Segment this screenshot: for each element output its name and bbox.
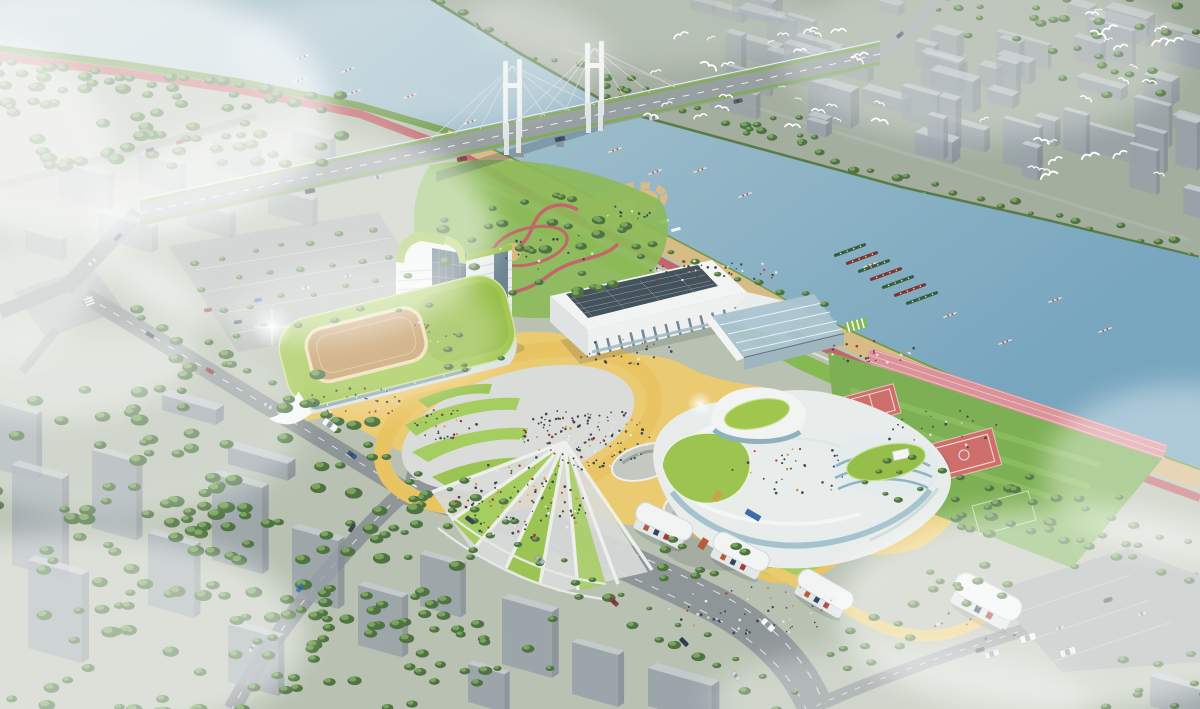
person: [626, 413, 629, 416]
person: [551, 528, 552, 529]
person: [900, 354, 903, 357]
person: [480, 523, 482, 525]
person: [530, 536, 533, 539]
person: [443, 437, 445, 439]
person: [563, 485, 566, 488]
person: [597, 426, 599, 428]
block-side: [1169, 104, 1173, 148]
person: [792, 605, 794, 607]
person: [595, 459, 597, 461]
person: [573, 464, 575, 466]
person: [637, 358, 640, 361]
person: [585, 425, 587, 427]
person: [567, 438, 569, 440]
tree: [730, 543, 742, 550]
person: [567, 462, 569, 464]
person: [551, 471, 554, 474]
person: [572, 514, 574, 516]
person: [810, 612, 812, 614]
person: [531, 500, 533, 502]
person: [605, 443, 607, 445]
person: [835, 344, 837, 346]
person: [607, 420, 609, 422]
person: [930, 416, 931, 417]
person: [612, 421, 614, 423]
person: [873, 350, 875, 352]
person: [563, 423, 566, 426]
person: [549, 425, 551, 427]
person: [626, 431, 628, 433]
tree: [470, 506, 480, 512]
person: [841, 476, 843, 478]
person: [624, 448, 626, 450]
tree: [578, 271, 587, 276]
person: [770, 276, 771, 277]
person: [622, 339, 624, 341]
person: [558, 465, 560, 467]
person: [744, 613, 746, 615]
person: [592, 462, 595, 465]
person: [527, 485, 528, 486]
city-block: [1175, 113, 1200, 170]
person: [475, 483, 477, 485]
person: [496, 470, 499, 473]
person: [329, 411, 331, 413]
person: [995, 424, 997, 426]
person: [369, 411, 371, 413]
person: [577, 415, 579, 417]
person: [468, 427, 470, 429]
person: [345, 410, 347, 412]
tree: [382, 454, 392, 460]
tree: [883, 458, 892, 464]
person: [723, 275, 725, 277]
tree: [418, 610, 431, 618]
person: [478, 529, 481, 532]
person: [732, 469, 734, 471]
person: [912, 347, 915, 350]
person: [609, 445, 611, 447]
person: [775, 271, 778, 274]
tree: [306, 645, 319, 653]
person: [609, 432, 612, 435]
person: [646, 215, 648, 217]
person: [543, 424, 545, 426]
person: [686, 610, 688, 612]
tree: [596, 218, 606, 224]
person: [391, 410, 393, 412]
person: [511, 470, 513, 472]
person: [611, 435, 614, 438]
tree: [320, 531, 334, 540]
person: [607, 416, 609, 418]
person: [538, 260, 541, 263]
person: [387, 412, 389, 414]
tree: [318, 589, 331, 597]
person: [620, 212, 622, 214]
person: [512, 492, 514, 494]
tree: [732, 657, 739, 661]
tree: [561, 558, 568, 562]
person: [830, 600, 831, 601]
tree: [867, 168, 875, 173]
person: [527, 484, 528, 485]
person: [596, 353, 598, 355]
person: [724, 267, 726, 269]
tree: [1028, 499, 1038, 505]
person: [637, 218, 639, 220]
tree: [875, 469, 882, 473]
tree: [770, 116, 777, 120]
person: [611, 456, 613, 458]
tree: [948, 190, 957, 196]
person: [731, 590, 733, 592]
person: [756, 620, 759, 623]
person: [589, 445, 591, 447]
person: [831, 353, 833, 355]
person: [724, 610, 726, 612]
person: [577, 425, 580, 428]
person: [701, 265, 703, 267]
tree: [775, 290, 784, 296]
tree: [295, 555, 310, 564]
tree: [443, 523, 453, 529]
person: [886, 361, 889, 364]
person: [565, 526, 568, 529]
tree: [237, 503, 253, 513]
person: [611, 427, 613, 429]
person: [737, 627, 739, 629]
tree: [1169, 236, 1180, 243]
tree: [571, 580, 581, 586]
block-side: [1164, 131, 1168, 173]
person: [639, 422, 641, 424]
person: [508, 467, 510, 469]
person: [741, 270, 743, 272]
person: [831, 449, 834, 452]
person: [781, 455, 783, 457]
person: [812, 605, 814, 607]
tree: [373, 553, 390, 564]
person: [488, 500, 491, 503]
person: [416, 424, 418, 426]
person: [497, 516, 499, 518]
person: [555, 474, 557, 476]
tree: [1010, 198, 1021, 205]
tree: [690, 572, 701, 579]
person: [546, 440, 548, 442]
person: [441, 413, 444, 416]
tree: [414, 668, 427, 676]
tree: [322, 616, 333, 623]
tree: [401, 530, 409, 535]
person: [531, 480, 534, 483]
person: [527, 494, 529, 496]
person: [633, 362, 635, 364]
person: [438, 430, 440, 432]
tree: [802, 291, 810, 296]
tree: [502, 519, 510, 524]
block-front: [1022, 144, 1038, 181]
person: [481, 531, 483, 533]
person: [747, 461, 750, 464]
person: [927, 444, 929, 446]
tree: [712, 663, 721, 669]
person: [327, 410, 328, 411]
person: [512, 517, 515, 520]
person: [718, 619, 721, 622]
tree: [466, 555, 475, 560]
person: [550, 502, 552, 504]
person: [569, 489, 571, 491]
person: [456, 420, 457, 421]
person: [520, 438, 522, 440]
person: [637, 363, 639, 365]
person: [902, 418, 904, 420]
tree: [956, 475, 965, 480]
tree: [410, 520, 423, 528]
person: [680, 272, 681, 273]
person: [517, 490, 519, 492]
person: [789, 619, 791, 621]
person: [578, 508, 580, 510]
person: [787, 454, 789, 456]
person: [599, 429, 601, 431]
person: [696, 275, 698, 277]
person: [474, 486, 477, 489]
person: [630, 434, 632, 436]
person: [783, 458, 785, 460]
tree: [1116, 223, 1125, 229]
person: [722, 265, 724, 267]
tree: [648, 241, 658, 247]
person: [830, 489, 832, 491]
person: [453, 433, 455, 435]
person: [845, 343, 847, 345]
person: [584, 441, 586, 443]
person: [626, 423, 628, 425]
person: [763, 269, 765, 271]
person: [634, 457, 636, 459]
person: [875, 360, 876, 361]
tree: [493, 666, 501, 671]
tree: [694, 106, 701, 111]
person: [700, 613, 703, 616]
tree: [468, 547, 478, 553]
tree: [364, 417, 380, 427]
person: [480, 490, 483, 493]
person: [965, 444, 968, 447]
person: [529, 431, 531, 433]
person: [524, 528, 526, 530]
person: [437, 432, 439, 434]
tree: [1170, 703, 1180, 709]
tree: [695, 567, 705, 573]
person: [547, 508, 549, 510]
person: [511, 253, 513, 255]
tree: [691, 653, 705, 662]
person: [598, 422, 599, 423]
person: [549, 487, 551, 489]
person: [567, 252, 569, 254]
person: [899, 359, 901, 361]
person: [645, 444, 647, 446]
person: [790, 468, 792, 470]
person: [720, 612, 722, 614]
tree: [449, 561, 465, 571]
person: [579, 465, 581, 467]
tree: [366, 454, 378, 461]
tree: [607, 280, 619, 287]
person: [460, 420, 462, 422]
person: [747, 598, 749, 600]
person: [680, 618, 683, 621]
tree: [617, 227, 626, 233]
tree: [363, 442, 373, 448]
tree: [797, 134, 803, 138]
person: [561, 492, 563, 494]
person: [688, 606, 690, 608]
person: [533, 534, 536, 537]
tree: [479, 639, 490, 646]
person: [554, 453, 556, 455]
person: [456, 433, 458, 435]
person: [736, 268, 737, 269]
person: [570, 509, 572, 511]
tree: [406, 503, 423, 514]
person: [621, 356, 623, 358]
person: [662, 266, 664, 268]
person: [786, 468, 789, 471]
person: [834, 455, 836, 457]
person: [469, 477, 470, 478]
person: [599, 466, 601, 468]
person: [494, 487, 496, 489]
person: [500, 491, 502, 493]
tree: [437, 611, 451, 620]
person: [770, 597, 772, 599]
person: [618, 430, 620, 432]
person: [873, 352, 875, 354]
tree: [362, 524, 378, 534]
person: [793, 480, 795, 482]
tree: [340, 547, 355, 556]
tree: [360, 592, 373, 600]
person: [505, 257, 507, 259]
tree: [1086, 227, 1094, 232]
person: [829, 487, 831, 489]
person: [543, 427, 545, 429]
person: [554, 448, 556, 450]
person: [944, 423, 947, 426]
person: [547, 512, 550, 515]
person: [831, 485, 833, 487]
person: [781, 479, 782, 480]
person: [647, 345, 649, 347]
tree: [710, 571, 720, 577]
person: [621, 411, 623, 413]
tree: [626, 622, 638, 629]
person: [557, 417, 559, 419]
person: [843, 358, 844, 359]
person: [607, 215, 608, 216]
person: [587, 419, 589, 421]
person: [682, 260, 684, 262]
tree: [984, 505, 993, 510]
person: [450, 437, 452, 439]
person: [535, 456, 538, 459]
person: [552, 498, 554, 500]
person: [656, 278, 658, 280]
person: [614, 452, 616, 454]
tree: [414, 471, 423, 477]
person: [552, 238, 555, 241]
person: [639, 205, 640, 206]
person: [605, 436, 606, 437]
tree: [404, 663, 415, 670]
tree: [892, 174, 904, 181]
person: [608, 439, 610, 441]
person: [832, 597, 835, 600]
person: [590, 433, 592, 435]
tree: [564, 223, 573, 229]
person: [799, 586, 800, 587]
sun-flare: [687, 391, 713, 417]
tree: [456, 631, 466, 637]
tree: [528, 248, 537, 253]
person: [945, 421, 947, 423]
tree: [660, 546, 671, 553]
person: [845, 462, 847, 464]
person: [494, 482, 497, 485]
tree: [164, 518, 180, 528]
tree: [678, 544, 687, 550]
person: [961, 422, 963, 424]
person: [487, 526, 489, 528]
tree: [991, 500, 1003, 507]
person: [583, 258, 585, 260]
tree: [181, 515, 193, 523]
person: [833, 465, 835, 467]
tree: [370, 535, 384, 543]
tree: [239, 512, 251, 520]
tree: [657, 564, 669, 571]
person: [519, 501, 520, 502]
person: [767, 610, 769, 612]
person: [420, 421, 422, 423]
tree: [425, 600, 439, 609]
person: [754, 450, 756, 452]
person: [504, 510, 506, 512]
person: [545, 413, 548, 416]
person: [443, 425, 445, 427]
person: [961, 436, 963, 438]
person: [454, 500, 455, 501]
person: [782, 621, 784, 623]
tree: [575, 243, 587, 250]
person: [527, 439, 529, 441]
tree: [734, 277, 741, 282]
block-side: [338, 537, 344, 609]
person: [518, 254, 520, 256]
person: [693, 624, 695, 626]
person: [374, 410, 376, 412]
person: [897, 424, 899, 426]
person: [562, 433, 564, 435]
person: [517, 530, 520, 533]
tree: [390, 620, 405, 629]
person: [795, 460, 797, 462]
